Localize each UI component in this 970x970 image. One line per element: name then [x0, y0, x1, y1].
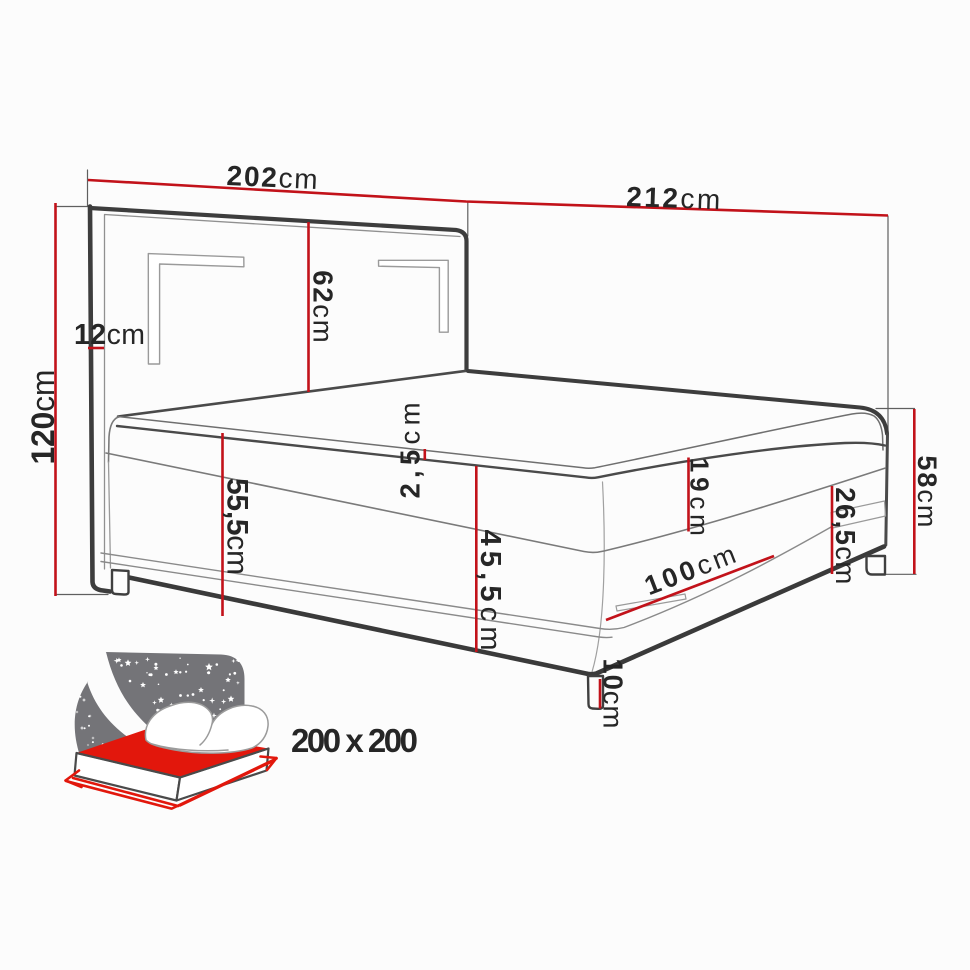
svg-text:55,5cm: 55,5cm [221, 478, 254, 575]
svg-text:120cm: 120cm [25, 370, 61, 465]
svg-text:2,5cm: 2,5cm [394, 403, 425, 499]
svg-text:12cm: 12cm [74, 319, 145, 351]
svg-text:62cm: 62cm [308, 270, 339, 343]
svg-text:19cm: 19cm [684, 458, 714, 536]
svg-text:212cm: 212cm [626, 181, 721, 215]
svg-text:202cm: 202cm [226, 160, 318, 195]
svg-text:26,5cm: 26,5cm [830, 487, 861, 584]
svg-text:58cm: 58cm [912, 455, 942, 527]
svg-text:10cm: 10cm [597, 658, 628, 728]
svg-text:200 x 200: 200 x 200 [291, 722, 418, 759]
